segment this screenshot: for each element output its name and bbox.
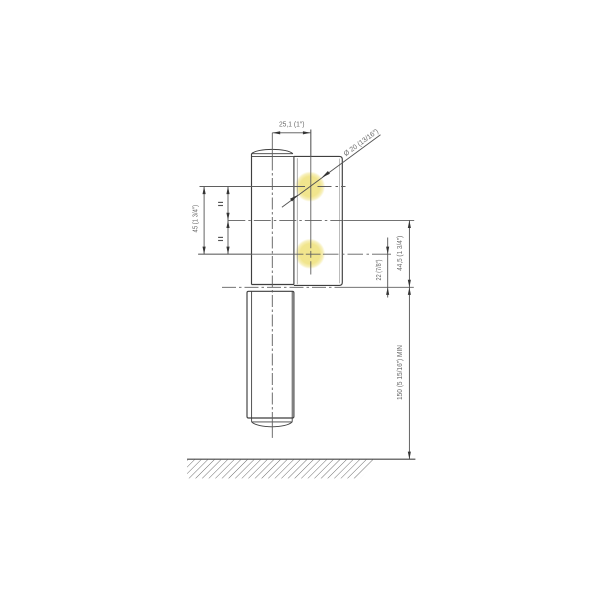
svg-text:150 (5 15/16″) MIN: 150 (5 15/16″) MIN (397, 345, 404, 400)
svg-text:25,1 (1″): 25,1 (1″) (279, 121, 305, 128)
svg-text:45 (1 3/4″): 45 (1 3/4″) (192, 205, 199, 233)
svg-text:22 (7/8″): 22 (7/8″) (376, 260, 383, 281)
svg-text:44,5 (1 3/4″): 44,5 (1 3/4″) (397, 236, 404, 271)
